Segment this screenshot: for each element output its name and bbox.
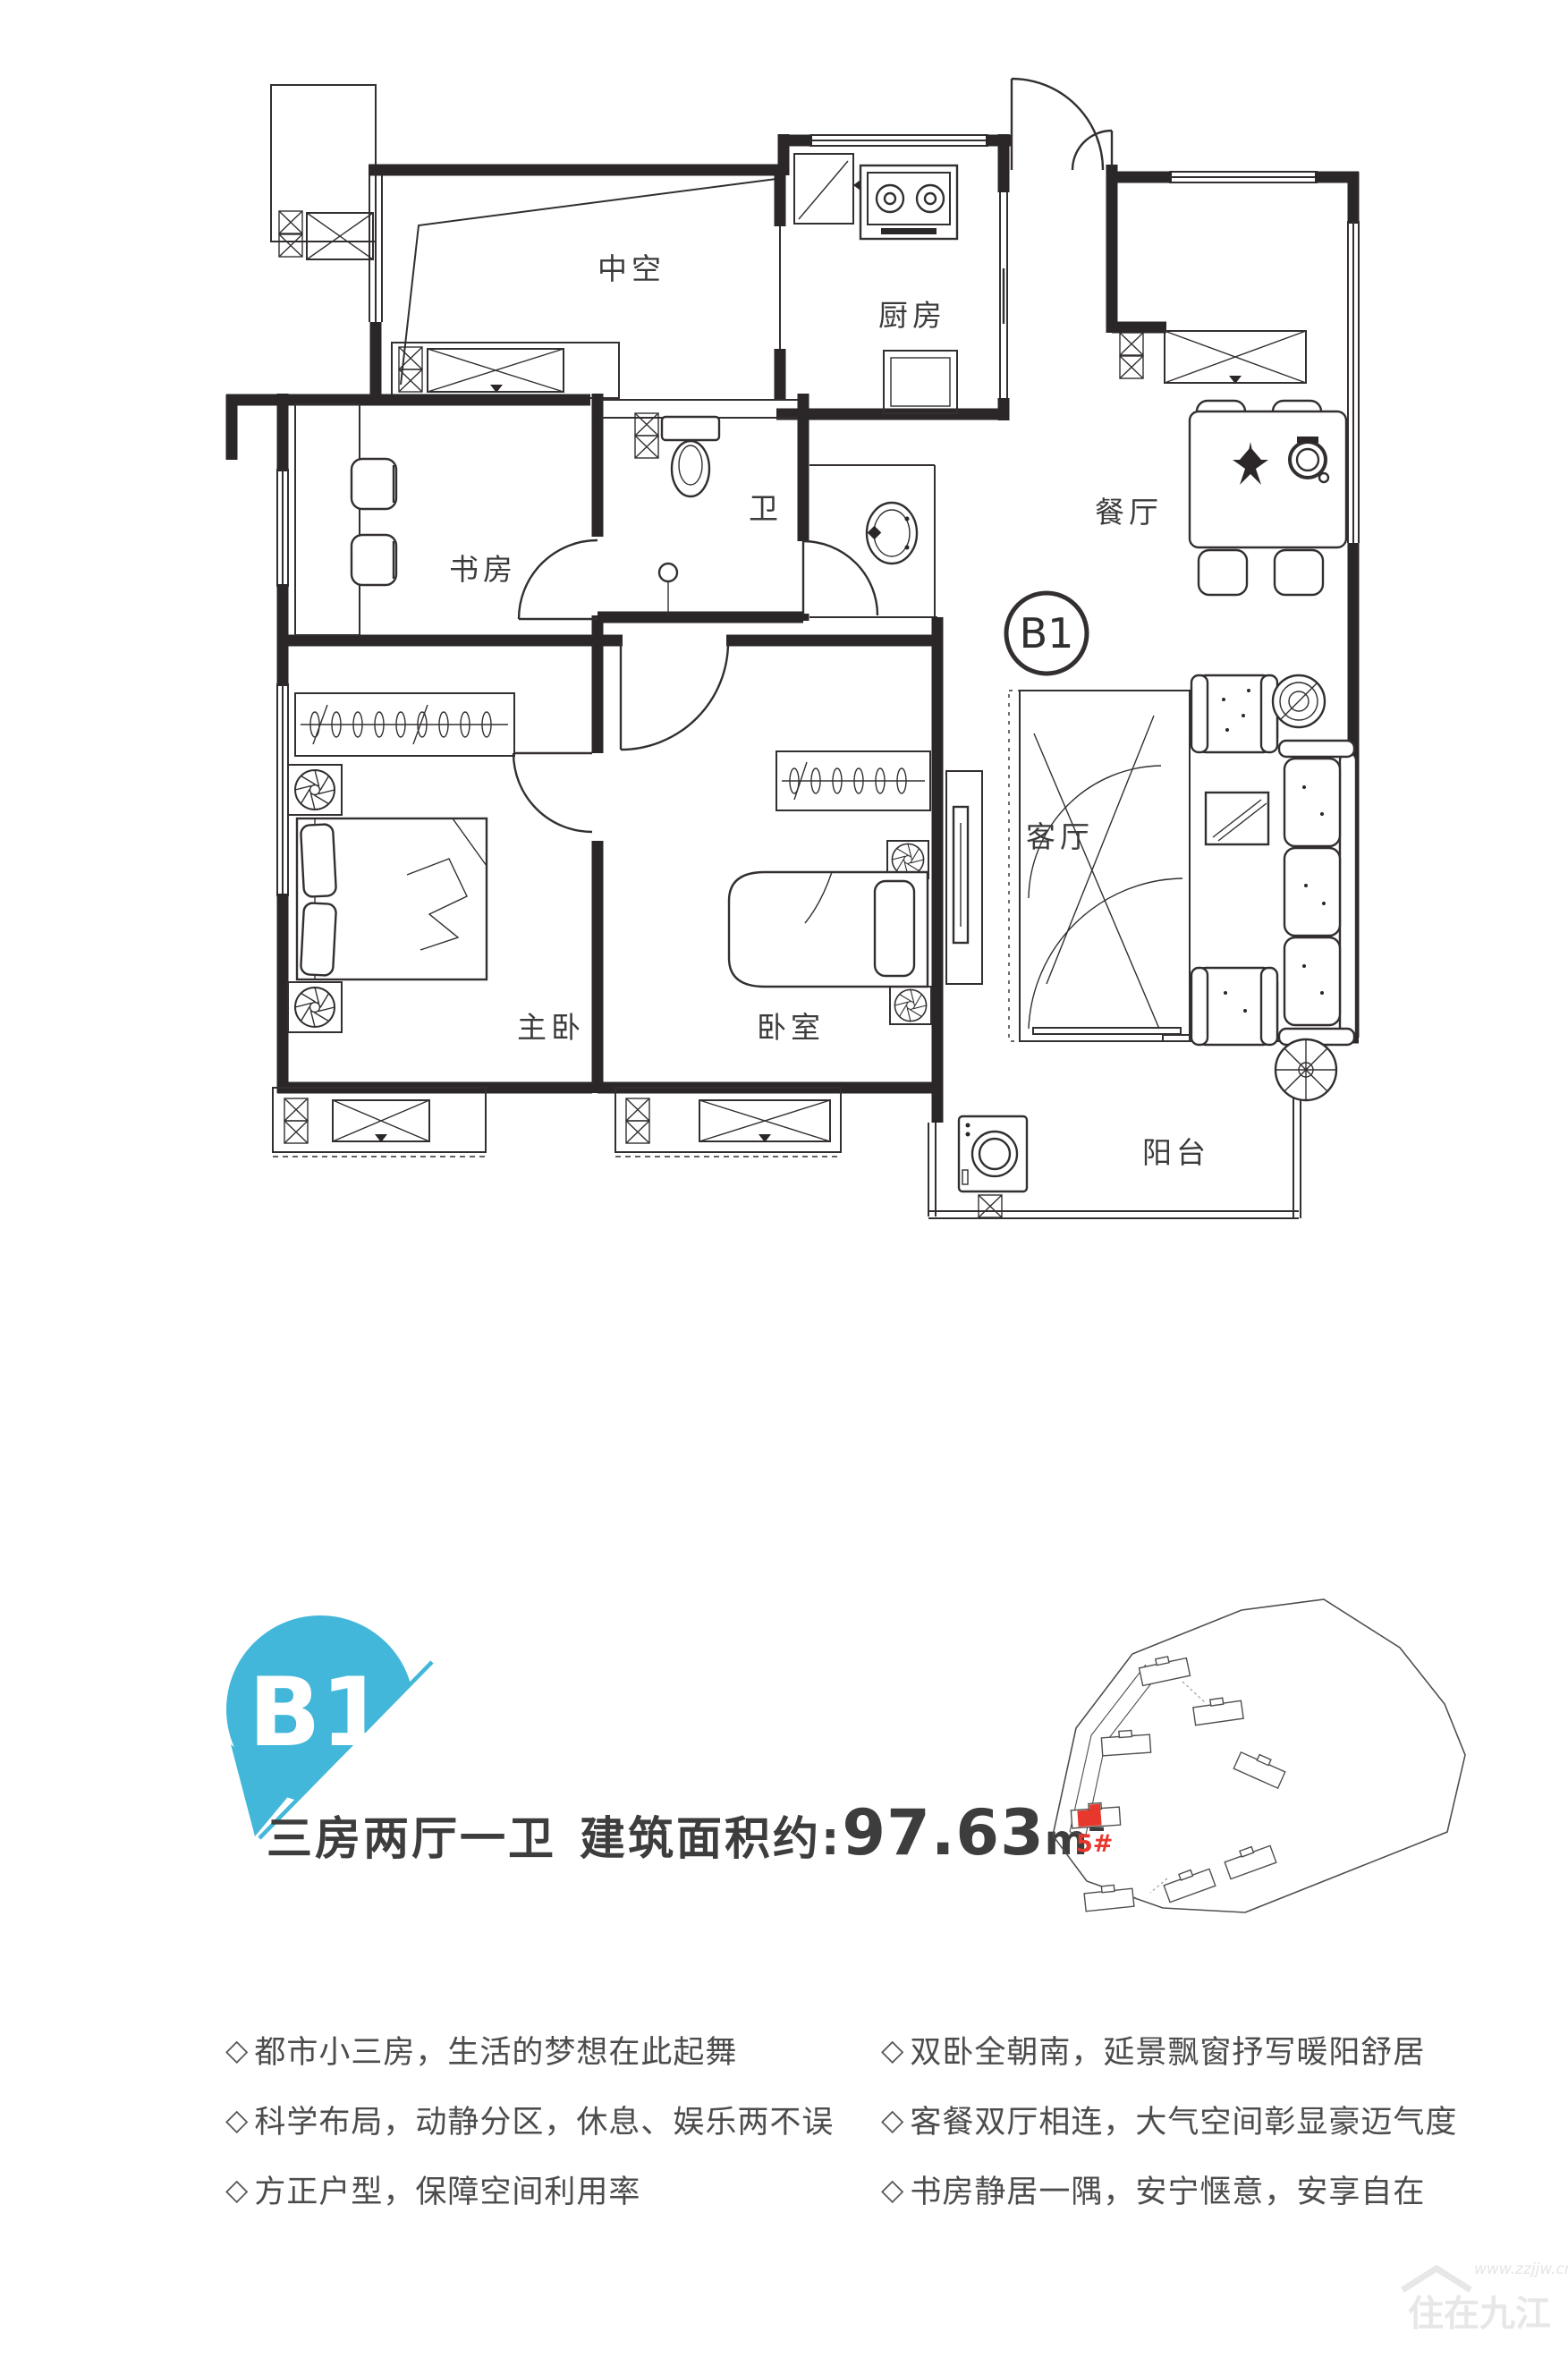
- feature-item: ◇ 方正户型，保障空间利用率: [225, 2154, 834, 2224]
- site-building: [1192, 1695, 1243, 1725]
- summary-area-label: 建筑面积约:: [580, 1802, 842, 1868]
- armchair-icon: [1191, 968, 1277, 1045]
- room-label-living: 客厅: [1026, 819, 1094, 854]
- room-label-bath: 卫: [749, 491, 783, 526]
- side-table-icon: [1273, 675, 1325, 727]
- site-building: [1101, 1729, 1151, 1756]
- site-building: [1162, 1864, 1216, 1903]
- washing-machine-icon: [959, 1116, 1027, 1191]
- rug-icon: [1009, 691, 1190, 1041]
- feature-column-left: ◇ 都市小三房，生活的梦想在此起舞 ◇ 科学布局，动静分区，休息、娱乐两不误 ◇…: [225, 2014, 834, 2224]
- badge-label: B1: [249, 1658, 387, 1768]
- watermark-url: www.zzjjw.cn: [1474, 2260, 1568, 2278]
- summary-layout: 三房两厅一卫: [267, 1802, 556, 1868]
- sofa-icon: [1279, 741, 1356, 1045]
- tv-cabinet-icon: [946, 771, 982, 984]
- feature-text: 书房静居一隅，安宁惬意，安享自在: [910, 2166, 1425, 2212]
- feature-text: 科学布局，动静分区，休息、娱乐两不误: [254, 2097, 834, 2142]
- wardrobe-icon: [295, 693, 514, 756]
- room-label-bedroom: 卧室: [757, 1010, 825, 1045]
- site-building: [1223, 1841, 1276, 1879]
- coffee-table-icon: [1206, 793, 1268, 844]
- study-furniture: [295, 404, 396, 635]
- feature-text: 双卧全朝南，延景飘窗抒写暖阳舒居: [910, 2027, 1425, 2073]
- desk-icon: [295, 404, 360, 635]
- plan-unit-circle: B1: [1006, 593, 1087, 674]
- master-bay-window: [273, 1088, 486, 1157]
- site-building: [1083, 1883, 1133, 1912]
- armchair-icon: [1191, 675, 1277, 752]
- watermark-name: 住在九江: [1408, 2293, 1551, 2335]
- room-label-kitchen: 厨房: [878, 298, 946, 333]
- bedroom-furniture: [615, 751, 931, 1157]
- washbasin-icon: [867, 503, 917, 564]
- site-building-highlighted: [1071, 1802, 1121, 1828]
- diamond-bullet-icon: ◇: [881, 2032, 904, 2067]
- room-label-master: 主卧: [517, 1010, 585, 1045]
- desk-chair-icon: [352, 459, 396, 509]
- room-label-balcony: 阳台: [1142, 1135, 1210, 1170]
- feature-item: ◇ 都市小三房，生活的梦想在此起舞: [225, 2014, 834, 2084]
- stove-icon: [860, 165, 957, 239]
- diamond-bullet-icon: ◇: [225, 2172, 249, 2207]
- living-furniture: [946, 675, 1356, 1100]
- wardrobe-icon: [776, 751, 930, 810]
- floorplan-page: B1 中空 厨房 餐厅 书房 卫 客厅 主卧 卧室 阳台 B1 三房两厅一卫 建…: [0, 0, 1568, 2357]
- site-map: 5#: [1020, 1579, 1521, 1937]
- kitchen-counter: [884, 351, 957, 413]
- double-bed-icon: [297, 818, 487, 979]
- dining-set: [1190, 401, 1346, 595]
- walls: [226, 85, 1359, 1218]
- feature-item: ◇ 双卧全朝南，延景飘窗抒写暖阳舒居: [881, 2014, 1457, 2084]
- shower-icon: [659, 564, 677, 615]
- feature-text: 客餐双厅相连，大气空间彰显豪迈气度: [910, 2097, 1457, 2142]
- room-label-dining: 餐厅: [1095, 495, 1163, 530]
- balcony-fittings: [959, 1116, 1027, 1217]
- site-building: [1233, 1747, 1287, 1788]
- house-roof-icon: [1403, 2268, 1471, 2290]
- summary-line: 三房两厅一卫 建筑面积约: 97.63 m 2: [267, 1796, 1106, 1869]
- room-label-void: 中空: [598, 251, 665, 286]
- plant-icon: [1276, 1039, 1336, 1100]
- summary-area-value: 97.63: [842, 1796, 1044, 1869]
- diamond-bullet-icon: ◇: [881, 2102, 904, 2137]
- feature-item: ◇ 客餐双厅相连，大气空间彰显豪迈气度: [881, 2084, 1457, 2154]
- toilet-icon: [662, 417, 719, 496]
- diamond-bullet-icon: ◇: [881, 2172, 904, 2207]
- kitchen-fittings: [794, 154, 957, 413]
- bedroom-bay-window: [615, 1088, 841, 1157]
- desk-chair-icon: [352, 535, 396, 585]
- study-door-arc: [519, 540, 598, 619]
- feature-item: ◇ 书房静居一隅，安宁惬意，安享自在: [881, 2154, 1457, 2224]
- plan-unit-circle-label: B1: [1020, 609, 1074, 657]
- site-building: [1138, 1653, 1190, 1686]
- diamond-bullet-icon: ◇: [225, 2032, 249, 2067]
- dining-table-icon: [1190, 411, 1346, 547]
- master-door-arc: [513, 753, 592, 832]
- entry-door-arc: [1012, 79, 1103, 170]
- feature-column-right: ◇ 双卧全朝南，延景飘窗抒写暖阳舒居 ◇ 客餐双厅相连，大气空间彰显豪迈气度 ◇…: [881, 2014, 1457, 2224]
- single-bed-icon: [729, 872, 928, 987]
- floor-plan: B1 中空 厨房 餐厅 书房 卫 客厅 主卧 卧室 阳台: [0, 0, 1568, 1297]
- master-furniture: [273, 693, 514, 1157]
- room-label-study: 书房: [449, 552, 517, 587]
- feature-item: ◇ 科学布局，动静分区，休息、娱乐两不误: [225, 2084, 834, 2154]
- feature-text: 都市小三房，生活的梦想在此起舞: [254, 2027, 737, 2073]
- diamond-bullet-icon: ◇: [225, 2102, 249, 2137]
- bath-door-arc: [803, 541, 877, 615]
- feature-text: 方正户型，保障空间利用率: [254, 2166, 640, 2212]
- watermark: www.zzjjw.cn 住在九江: [1385, 2243, 1568, 2351]
- bedroom-door-arc: [621, 642, 728, 750]
- site-highlight-label: 5#: [1076, 1830, 1113, 1858]
